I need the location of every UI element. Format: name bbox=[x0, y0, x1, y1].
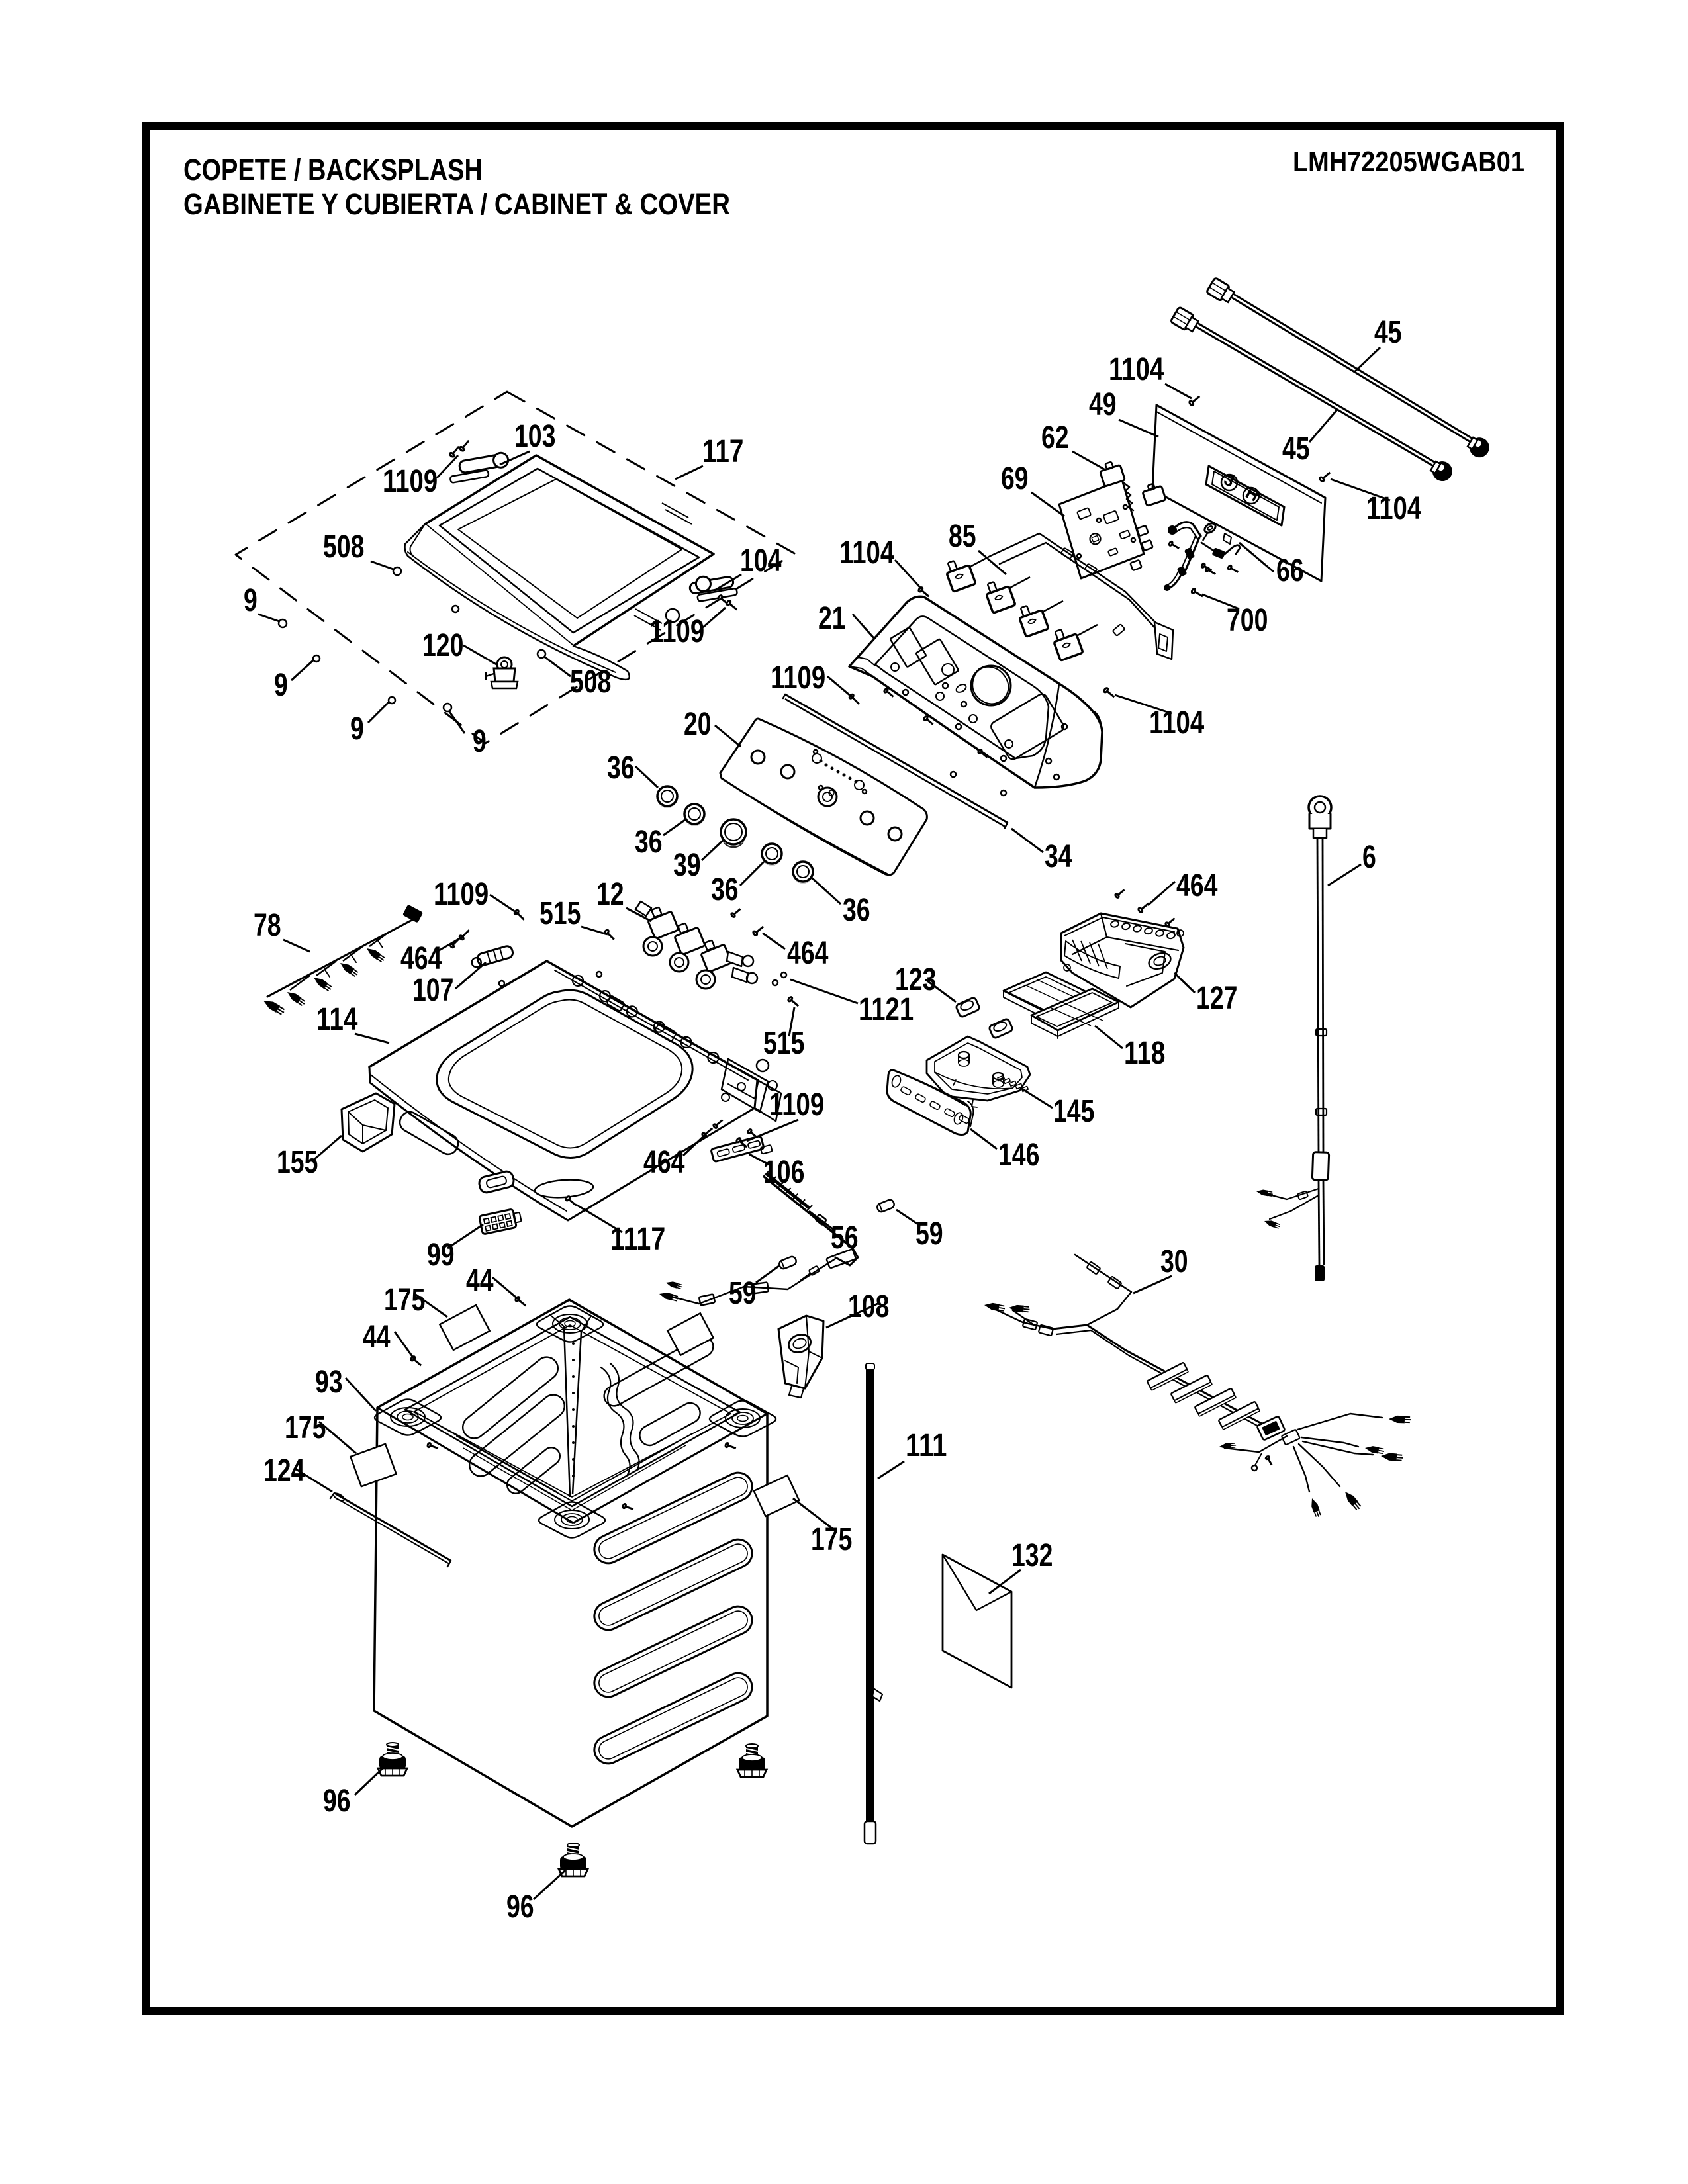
svg-text:21: 21 bbox=[818, 601, 846, 636]
svg-text:464: 464 bbox=[1176, 868, 1218, 903]
svg-text:34: 34 bbox=[1045, 839, 1072, 874]
svg-text:36: 36 bbox=[711, 872, 739, 907]
svg-text:59: 59 bbox=[729, 1276, 757, 1311]
svg-text:464: 464 bbox=[787, 936, 829, 971]
svg-text:93: 93 bbox=[315, 1365, 343, 1400]
svg-text:103: 103 bbox=[514, 419, 555, 454]
svg-text:99: 99 bbox=[427, 1238, 455, 1273]
svg-text:1109: 1109 bbox=[769, 1087, 824, 1122]
svg-text:117: 117 bbox=[702, 434, 743, 469]
svg-text:1109: 1109 bbox=[383, 464, 438, 499]
svg-text:59: 59 bbox=[915, 1216, 943, 1251]
svg-text:508: 508 bbox=[323, 529, 364, 565]
svg-text:96: 96 bbox=[506, 1889, 534, 1925]
svg-text:155: 155 bbox=[277, 1145, 318, 1180]
svg-text:1104: 1104 bbox=[1149, 705, 1204, 741]
svg-text:56: 56 bbox=[831, 1220, 859, 1255]
svg-text:1109: 1109 bbox=[434, 877, 489, 912]
svg-text:114: 114 bbox=[316, 1002, 358, 1037]
svg-text:20: 20 bbox=[684, 707, 712, 742]
svg-text:1104: 1104 bbox=[1109, 352, 1164, 387]
svg-text:62: 62 bbox=[1041, 420, 1069, 455]
svg-text:45: 45 bbox=[1374, 315, 1402, 350]
svg-text:85: 85 bbox=[949, 519, 976, 554]
svg-text:96: 96 bbox=[323, 1784, 351, 1819]
svg-text:44: 44 bbox=[363, 1320, 391, 1355]
svg-text:515: 515 bbox=[539, 896, 581, 931]
svg-text:69: 69 bbox=[1001, 461, 1029, 496]
svg-text:78: 78 bbox=[254, 908, 281, 943]
svg-text:145: 145 bbox=[1053, 1094, 1094, 1129]
svg-text:36: 36 bbox=[607, 751, 635, 786]
svg-text:104: 104 bbox=[740, 543, 782, 578]
svg-text:1109: 1109 bbox=[771, 660, 825, 696]
svg-text:9: 9 bbox=[244, 583, 258, 618]
svg-text:111: 111 bbox=[906, 1428, 947, 1463]
svg-text:12: 12 bbox=[596, 877, 624, 912]
svg-text:127: 127 bbox=[1196, 981, 1237, 1016]
svg-text:9: 9 bbox=[473, 724, 487, 759]
svg-text:1109: 1109 bbox=[649, 614, 704, 649]
svg-text:108: 108 bbox=[848, 1289, 889, 1324]
svg-text:107: 107 bbox=[412, 973, 453, 1008]
svg-text:508: 508 bbox=[570, 664, 611, 700]
svg-text:124: 124 bbox=[263, 1453, 305, 1488]
svg-text:COPETE / BACKSPLASH: COPETE / BACKSPLASH bbox=[183, 153, 483, 187]
svg-text:39: 39 bbox=[673, 848, 701, 883]
svg-text:49: 49 bbox=[1089, 387, 1117, 422]
svg-text:175: 175 bbox=[285, 1410, 326, 1445]
svg-text:6: 6 bbox=[1362, 840, 1376, 875]
svg-text:700: 700 bbox=[1227, 603, 1268, 638]
svg-text:1121: 1121 bbox=[859, 992, 914, 1027]
svg-text:464: 464 bbox=[400, 941, 442, 976]
svg-text:66: 66 bbox=[1276, 553, 1304, 588]
svg-text:GABINETE Y CUBIERTA / CABINET: GABINETE Y CUBIERTA / CABINET & COVER bbox=[183, 187, 730, 221]
svg-text:118: 118 bbox=[1124, 1036, 1165, 1071]
svg-text:9: 9 bbox=[274, 668, 288, 703]
svg-text:36: 36 bbox=[843, 893, 870, 928]
svg-text:1117: 1117 bbox=[610, 1222, 665, 1257]
svg-text:175: 175 bbox=[384, 1283, 425, 1318]
svg-text:1104: 1104 bbox=[1366, 491, 1421, 526]
svg-text:36: 36 bbox=[635, 825, 663, 860]
svg-text:132: 132 bbox=[1011, 1538, 1053, 1573]
svg-text:120: 120 bbox=[422, 628, 463, 663]
svg-text:9: 9 bbox=[350, 711, 364, 747]
svg-text:464: 464 bbox=[643, 1145, 685, 1180]
svg-text:LMH72205WGAB01: LMH72205WGAB01 bbox=[1293, 146, 1524, 178]
svg-text:30: 30 bbox=[1160, 1244, 1188, 1279]
svg-text:146: 146 bbox=[998, 1138, 1039, 1173]
svg-text:175: 175 bbox=[811, 1522, 852, 1557]
svg-text:1104: 1104 bbox=[839, 535, 894, 570]
svg-text:106: 106 bbox=[763, 1155, 804, 1190]
svg-text:515: 515 bbox=[763, 1026, 804, 1061]
svg-text:44: 44 bbox=[466, 1263, 494, 1298]
svg-text:45: 45 bbox=[1282, 432, 1310, 467]
